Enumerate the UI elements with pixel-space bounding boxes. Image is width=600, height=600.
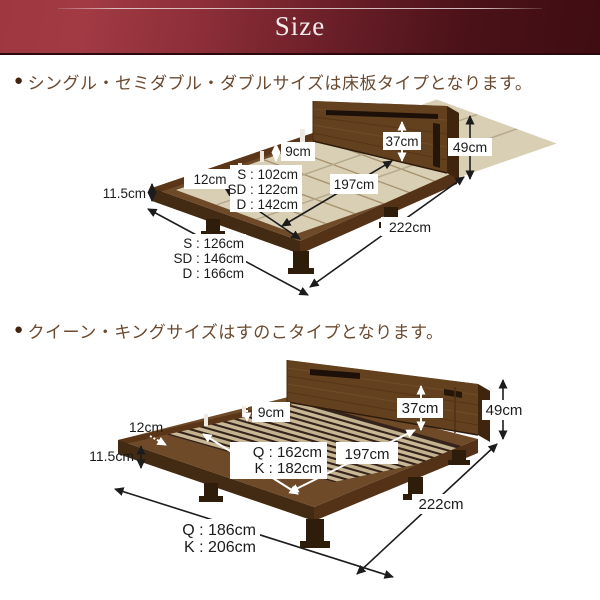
frame-height-label: 9cm bbox=[285, 144, 311, 159]
section2-heading: ● クイーン・キングサイズはすのこタイプとなります。 bbox=[14, 318, 600, 342]
floorboard-bed-diagram: 11.5cm 12cm 9cm S : 102cm SD : 122cm D :… bbox=[0, 93, 600, 298]
total-length-label: 222cm bbox=[418, 496, 463, 513]
total-height-label: 49cm bbox=[486, 402, 523, 419]
size-banner: Size bbox=[0, 0, 600, 55]
bullet-icon: ● bbox=[14, 323, 24, 338]
outer-width-k: K : 206cm bbox=[184, 539, 256, 556]
section1-heading: ● シングル・セミダブル・ダブルサイズは床板タイプとなります。 bbox=[14, 69, 600, 93]
inner-width-s: S : 102cm bbox=[237, 167, 298, 182]
page-title: Size bbox=[0, 11, 600, 42]
inner-width-q: Q : 162cm bbox=[253, 444, 322, 461]
total-height-label: 49cm bbox=[453, 139, 487, 155]
headboard-height-label: 37cm bbox=[385, 134, 418, 149]
bullet-icon: ● bbox=[14, 74, 24, 89]
inner-width-sd: SD : 122cm bbox=[227, 182, 298, 197]
outer-width-d: D : 166cm bbox=[182, 266, 244, 281]
banner-accent-line bbox=[58, 8, 542, 9]
stage-margin-label: 12cm bbox=[129, 419, 163, 435]
platform-height-label: 11.5cm bbox=[103, 186, 146, 201]
inner-length-label: 197cm bbox=[344, 446, 389, 463]
total-length-label: 222cm bbox=[389, 219, 431, 235]
section1-heading-text: シングル・セミダブル・ダブルサイズは床板タイプとなります。 bbox=[28, 69, 533, 94]
outer-width-s: S : 126cm bbox=[183, 236, 244, 251]
slat-bed-diagram: 11.5cm 12cm 9cm Q : 162cm K : 182cm 197c… bbox=[0, 342, 600, 597]
outer-width-q: Q : 186cm bbox=[182, 522, 256, 539]
section2-heading-text: クイーン・キングサイズはすのこタイプとなります。 bbox=[28, 318, 444, 343]
inner-length-label: 197cm bbox=[334, 177, 375, 192]
outer-width-sd: SD : 146cm bbox=[173, 251, 244, 266]
platform-height-label: 11.5cm bbox=[89, 448, 134, 464]
stage-margin-label: 12cm bbox=[193, 172, 226, 187]
inner-width-k: K : 182cm bbox=[254, 460, 322, 477]
headboard-height-label: 37cm bbox=[402, 400, 439, 417]
inner-width-d: D : 142cm bbox=[236, 197, 298, 212]
frame-height-label: 9cm bbox=[258, 404, 284, 420]
